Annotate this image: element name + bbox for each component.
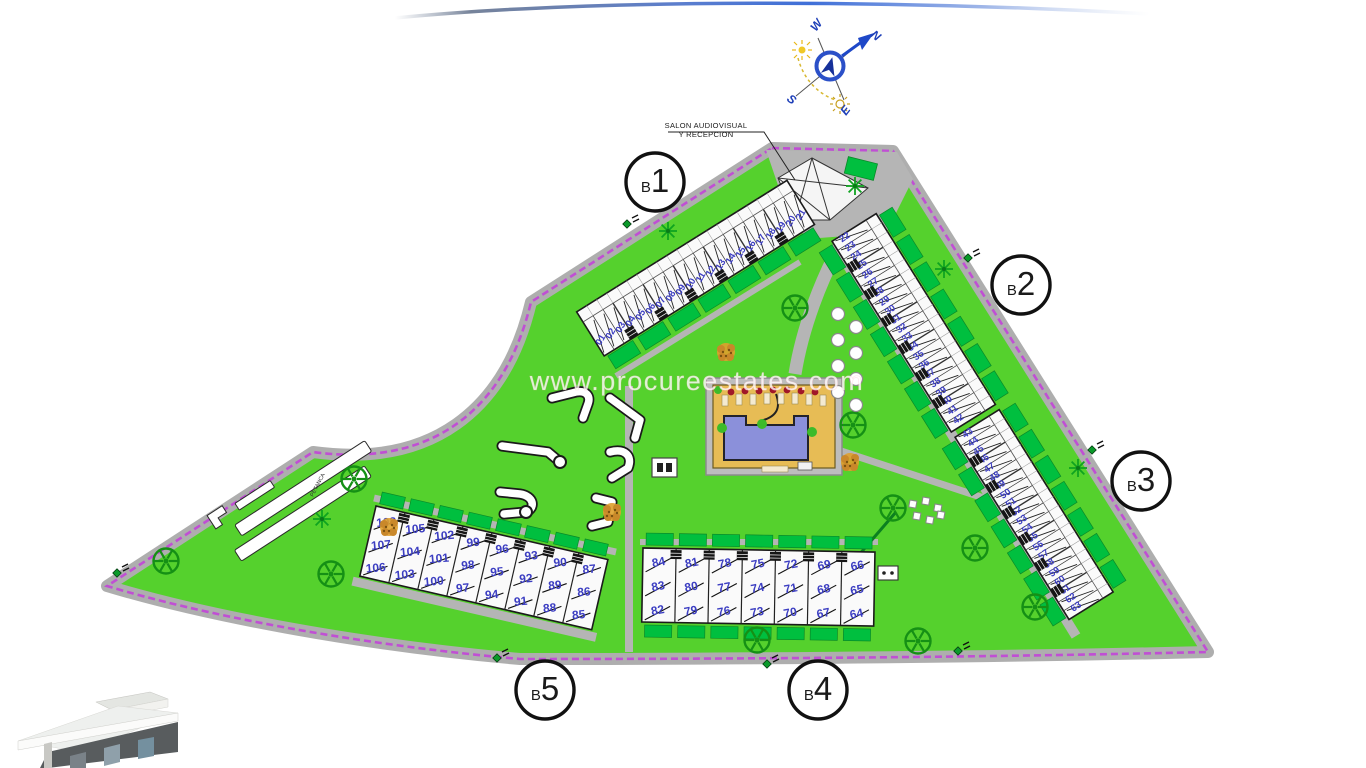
palm-icon — [1069, 459, 1087, 477]
watermark: www.procureestates.com — [529, 366, 865, 396]
unit-number: 106 — [365, 560, 386, 576]
unit-number: 107 — [370, 537, 391, 553]
sun-icon — [792, 40, 812, 60]
garden-plot — [843, 629, 870, 641]
seating-circle — [850, 399, 863, 412]
info-sign — [652, 458, 677, 477]
unit-number: 100 — [423, 573, 444, 589]
garden-plot — [779, 535, 806, 547]
equipment-square — [937, 511, 945, 519]
garden-plot — [646, 533, 673, 545]
compass-w-label: W — [807, 15, 826, 34]
compass-n-label: N — [868, 27, 884, 44]
garden-plot — [777, 627, 804, 639]
unit-number: 90 — [553, 555, 568, 570]
unit-number: 85 — [571, 607, 586, 622]
site-plan-drawing: PETANCA 01020304050607080910111213141516… — [0, 0, 1366, 768]
shrub-icon — [717, 343, 735, 361]
equipment-square — [913, 512, 921, 520]
gate-icon — [1088, 441, 1104, 454]
unit-number: 93 — [524, 548, 539, 563]
block-label-b5: B5 — [516, 661, 574, 719]
unit-number: 105 — [405, 521, 426, 537]
unit-number: 99 — [466, 535, 481, 550]
seating-circle — [832, 334, 845, 347]
unit-number: 86 — [577, 584, 592, 599]
garden-plot — [712, 534, 739, 546]
compass-rose-icon: N S W E — [784, 15, 884, 118]
unit-number: 104 — [399, 544, 420, 560]
equipment-square — [922, 497, 930, 505]
reception-callout-line2: Y RECEPCION — [679, 130, 734, 139]
gate-icon — [623, 215, 639, 228]
garden-plot — [810, 628, 837, 640]
shrub-icon — [841, 453, 859, 471]
garden-plot — [679, 534, 706, 546]
unit-number: 103 — [394, 567, 415, 583]
header-swoosh — [395, 3, 1150, 18]
unit-number: 87 — [582, 561, 597, 576]
compass-s-label: S — [784, 91, 799, 107]
shrub-icon — [603, 503, 621, 521]
block-label-b2: B2 — [992, 256, 1050, 314]
palm-icon — [659, 222, 677, 240]
unit-number: 102 — [434, 528, 455, 544]
unit-number: 92 — [519, 571, 534, 586]
unit-number: 95 — [490, 564, 505, 579]
unit-number: 96 — [495, 541, 510, 556]
garden-plot — [644, 625, 671, 637]
utility-box — [878, 566, 898, 580]
unit-number: 97 — [455, 580, 470, 595]
pool-steps — [798, 462, 812, 470]
garden-plot — [745, 535, 772, 547]
corner-building-render — [18, 692, 178, 768]
palm-icon — [313, 510, 331, 528]
block-label-b1: B1 — [626, 153, 684, 211]
seating-circle — [832, 308, 845, 321]
shrub-icon — [380, 518, 398, 536]
unit-number: 88 — [542, 600, 557, 615]
unit-number: 94 — [484, 587, 499, 602]
equipment-square — [909, 500, 917, 508]
reception-callout-line1: SALON AUDIOVISUAL — [665, 121, 748, 130]
block-label-b4: B4 — [789, 661, 847, 719]
palm-icon — [935, 260, 953, 278]
seating-circle — [850, 321, 863, 334]
unit-number: 101 — [428, 551, 449, 567]
site-plan-page: { "watermark": "www.procureestates.com",… — [0, 0, 1366, 768]
equipment-square — [926, 516, 934, 524]
garden-plot — [711, 626, 738, 638]
unit-number: 91 — [513, 594, 528, 609]
garden-plot — [845, 537, 872, 549]
unit-number: 89 — [548, 578, 563, 593]
block-label-b3: B3 — [1112, 452, 1170, 510]
compass-e-label: E — [837, 102, 854, 118]
gate-icon — [964, 249, 980, 262]
seating-circle — [850, 347, 863, 360]
garden-plot — [678, 626, 705, 638]
palm-icon — [846, 177, 864, 195]
garden-plot — [812, 536, 839, 548]
unit-number: 98 — [461, 557, 476, 572]
